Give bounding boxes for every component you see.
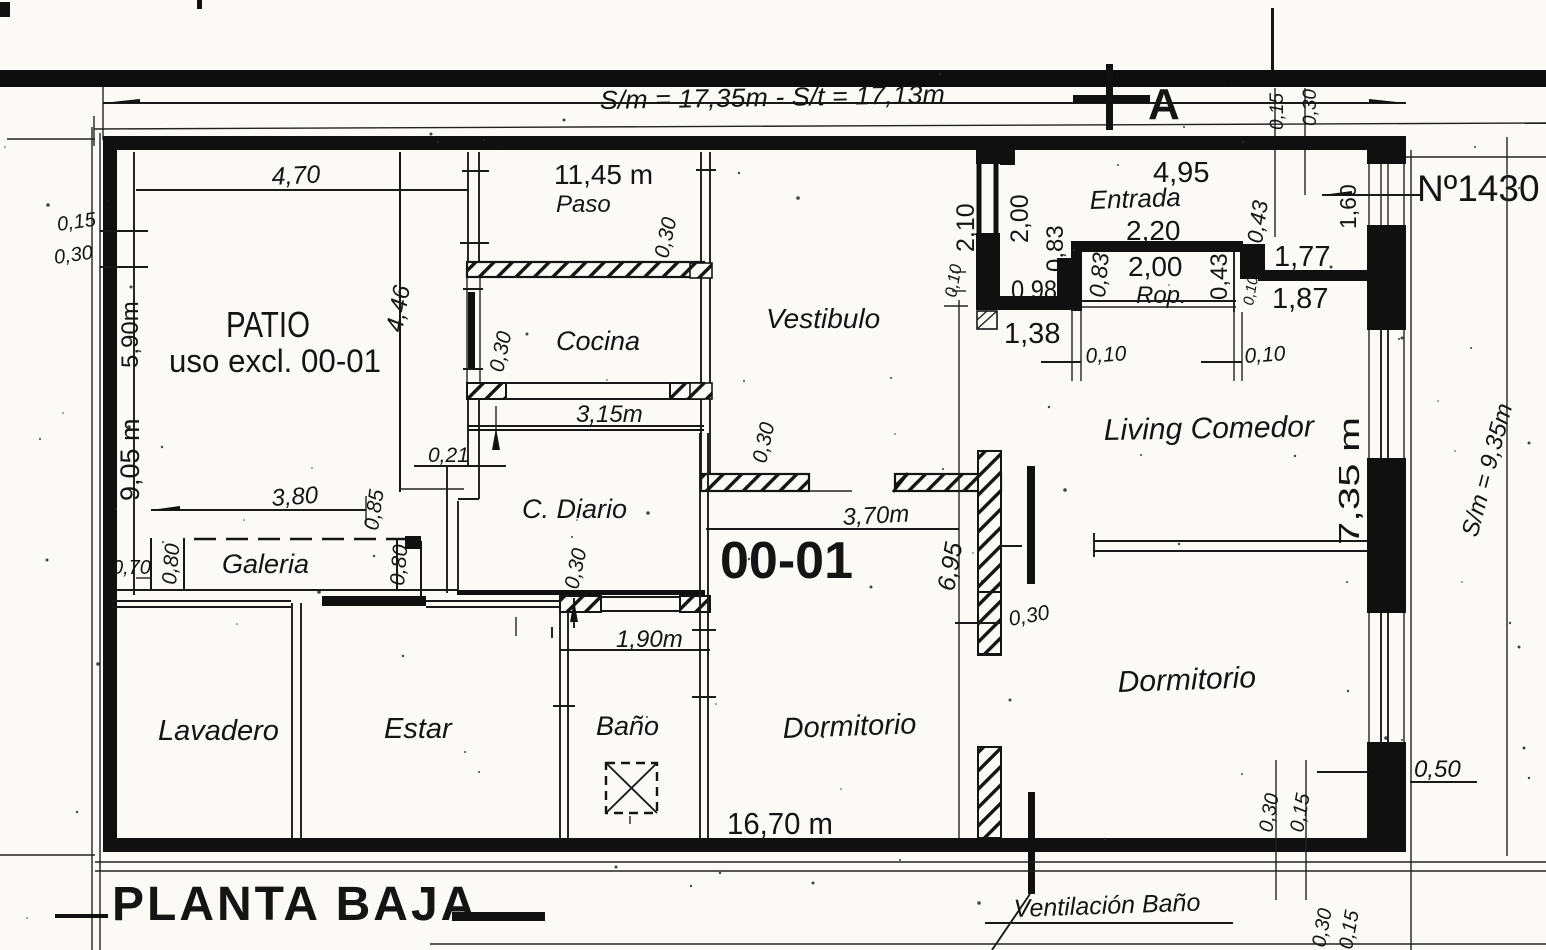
svg-text:Rop.: Rop. [1136, 282, 1187, 309]
svg-text:Estar: Estar [384, 713, 453, 745]
svg-text:1,90m: 1,90m [616, 626, 683, 653]
svg-text:1,60: 1,60 [1335, 184, 1361, 229]
svg-text:0,50: 0,50 [1414, 756, 1461, 783]
svg-text:0,10: 0,10 [1085, 342, 1128, 368]
svg-text:0,83: 0,83 [1084, 251, 1114, 298]
svg-text:uso excl. 00-01: uso excl. 00-01 [169, 343, 381, 379]
svg-text:0,43: 0,43 [1206, 253, 1233, 300]
svg-text:PATIO: PATIO [226, 304, 310, 345]
svg-text:0,10: 0,10 [1244, 342, 1287, 368]
svg-text:0,15: 0,15 [1267, 93, 1288, 130]
svg-text:00-01: 00-01 [720, 532, 853, 590]
svg-text:Nº1430: Nº1430 [1417, 168, 1540, 209]
svg-text:2,00: 2,00 [1006, 194, 1034, 243]
svg-text:Paso: Paso [556, 191, 611, 218]
svg-text:Dormitorio: Dormitorio [1117, 661, 1256, 699]
svg-text:5,90m: 5,90m [117, 301, 144, 368]
svg-text:Galeria: Galeria [222, 549, 309, 579]
svg-text:3,80: 3,80 [271, 482, 320, 512]
svg-text:4,70: 4,70 [271, 160, 321, 191]
svg-text:0,80: 0,80 [158, 542, 185, 585]
svg-text:Living Comedor: Living Comedor [1104, 410, 1316, 447]
svg-text:Baño: Baño [596, 711, 659, 741]
svg-text:2,00: 2,00 [1128, 251, 1183, 282]
svg-text:0,80: 0,80 [386, 543, 413, 586]
svg-text:0,30: 0,30 [1300, 89, 1321, 126]
svg-text:1,87: 1,87 [1272, 283, 1328, 315]
svg-text:3,70m: 3,70m [842, 501, 910, 531]
svg-text:Dormitorio: Dormitorio [782, 708, 917, 745]
svg-text:0,21: 0,21 [428, 444, 469, 467]
svg-text:1,38: 1,38 [1004, 318, 1060, 350]
svg-text:3,15m: 3,15m [576, 401, 643, 428]
svg-text:0,70: 0,70 [112, 557, 151, 579]
svg-text:PLANTA BAJA: PLANTA BAJA [112, 878, 478, 931]
svg-text:11,45 m: 11,45 m [554, 159, 653, 190]
svg-text:Cocina: Cocina [556, 326, 640, 356]
svg-text:S/m = 17,35m - S/t = 17,13m: S/m = 17,35m - S/t = 17,13m [600, 79, 945, 115]
svg-text:9,05 m: 9,05 m [115, 418, 145, 501]
svg-text:Vestibulo: Vestibulo [766, 303, 880, 334]
svg-text:Entrada: Entrada [1089, 182, 1181, 215]
svg-text:A: A [1148, 80, 1180, 129]
svg-text:16,70 m: 16,70 m [727, 806, 833, 841]
svg-text:C. Diario: C. Diario [522, 494, 627, 524]
svg-text:2,10: 2,10 [952, 203, 980, 252]
svg-text:1,77: 1,77 [1274, 241, 1330, 273]
svg-text:Lavadero: Lavadero [158, 715, 279, 747]
svg-text:7,35 m: 7,35 m [1334, 417, 1366, 545]
